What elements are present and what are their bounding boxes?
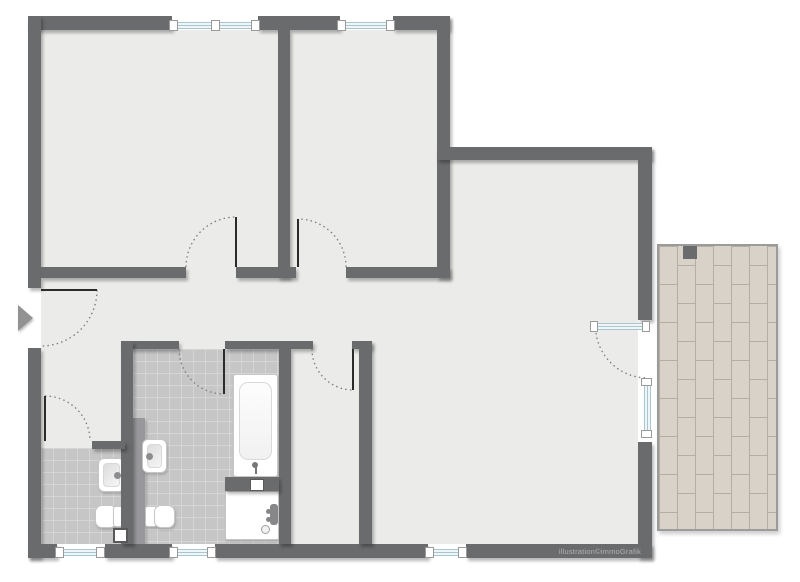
wall-bottom-2 [105, 544, 172, 558]
living-bottom-window-cap2 [458, 547, 467, 558]
wall-left-upper [28, 16, 41, 288]
wall-bottom-3 [215, 544, 428, 558]
living-terrace-window-cap2 [641, 430, 652, 438]
top-window-left-mullion [211, 20, 220, 31]
floor-hall-living-link [437, 278, 450, 544]
floor-plan: illustration©immoGrafik [0, 0, 800, 582]
service-shaft-bath-icon [250, 479, 264, 491]
wall-top-2 [258, 16, 340, 30]
top-window-right-cap1 [337, 20, 346, 31]
wall-bath-right [279, 349, 291, 544]
wall-living-top [437, 147, 652, 160]
entrance-arrow-icon [18, 305, 33, 331]
shower-tray-icon [225, 491, 279, 540]
wall-left-lower [28, 348, 41, 558]
shower-drain-icon [261, 525, 270, 534]
wall-right-upper [638, 147, 652, 320]
bathtub-inner [239, 382, 272, 460]
living-terrace-window-glass [644, 385, 651, 431]
living-bottom-window-cap1 [425, 547, 434, 558]
bathroom-window-cap1 [169, 547, 178, 558]
living-terrace-window-cap1 [641, 378, 652, 386]
top-window-right-cap2 [386, 20, 395, 31]
toilet-bath-bowl-icon [154, 505, 175, 528]
top-window-left-cap1 [169, 20, 178, 31]
bathtub-icon [233, 374, 278, 477]
wall-storage-right [359, 341, 372, 544]
bathroom-prewall [133, 418, 145, 544]
shower-mixer-icon [270, 504, 278, 525]
bathtub-faucet-stem [255, 466, 257, 474]
terrace-post [683, 246, 697, 259]
service-shaft-wc-icon [113, 528, 128, 543]
terrace-door-cap1 [590, 321, 598, 332]
washbasin-bath-icon [142, 439, 167, 473]
wall-rooms-bottom-3 [346, 267, 450, 278]
wall-top-1 [28, 16, 172, 30]
wall-bottom-1 [28, 544, 57, 558]
shower-mixer-knob2 [266, 517, 271, 522]
wall-wc-top [92, 441, 125, 449]
top-window-left-cap2 [251, 20, 260, 31]
wall-right-lower [638, 442, 652, 558]
bathroom-window-cap2 [207, 547, 216, 558]
floor-living-room [450, 160, 638, 544]
wall-rooms-bottom-2 [236, 267, 296, 278]
wall-bath-top-right [225, 341, 313, 349]
shower-mixer-knob [266, 509, 271, 514]
terrace-door-cap2 [642, 321, 650, 332]
washbasin-bath-faucet-icon [146, 453, 153, 460]
wall-rooms-partition [278, 30, 290, 278]
wc-window-cap2 [96, 547, 105, 558]
wall-rooms-bottom-1 [41, 267, 186, 278]
washbasin-wc-faucet-icon [114, 472, 121, 479]
watermark: illustration©immoGrafik [540, 547, 660, 556]
terrace-decking-icon [659, 246, 776, 529]
wc-window-cap1 [55, 547, 64, 558]
terrace [657, 244, 778, 531]
